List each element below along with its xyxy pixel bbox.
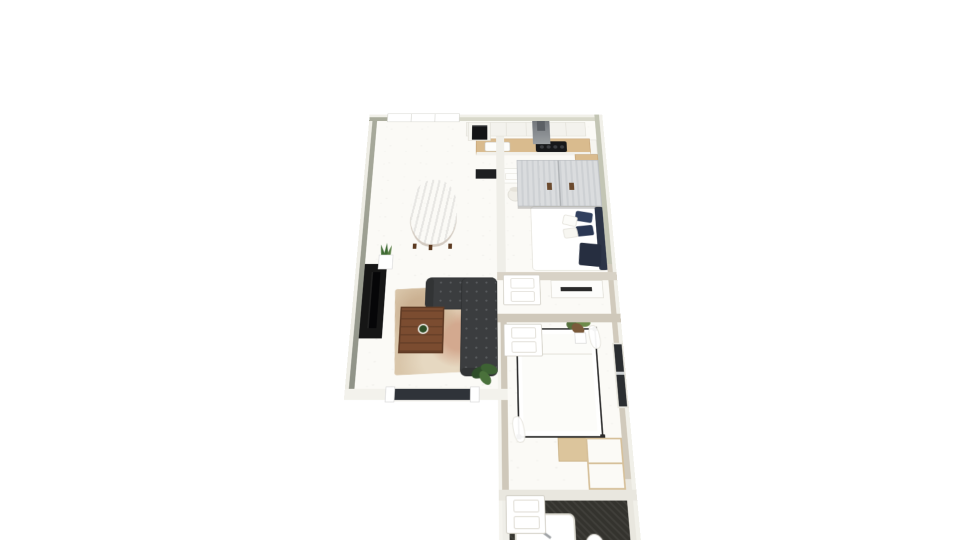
- door-panel: [514, 516, 540, 529]
- door-panel: [513, 500, 539, 513]
- sliding-glass-door[interactable]: [387, 113, 460, 122]
- door-panel: [510, 278, 535, 288]
- console-table[interactable]: [551, 280, 604, 298]
- dining-table[interactable]: [409, 180, 458, 244]
- tabletop-plant: [419, 325, 427, 332]
- partition-hall-bedroom2: [497, 314, 621, 323]
- floor-plant[interactable]: [471, 362, 500, 390]
- burner: [540, 145, 544, 148]
- double-bed[interactable]: [530, 206, 607, 270]
- floorplan-scene: [337, 121, 635, 540]
- wardrobe-handle: [569, 183, 574, 190]
- oven-tall-unit[interactable]: [468, 122, 491, 141]
- burner: [560, 145, 564, 148]
- planter-snake-plant[interactable]: [375, 246, 397, 268]
- door-panel: [511, 341, 537, 352]
- white-pillow: [563, 227, 579, 238]
- white-pillow: [562, 214, 578, 227]
- apartment-plan: [337, 121, 635, 540]
- canvas-background: [0, 0, 960, 540]
- console-slot: [561, 287, 593, 291]
- plant-pot: [574, 333, 586, 344]
- sofa-armrest: [425, 278, 434, 309]
- table-leg: [448, 244, 452, 249]
- interior-door-2[interactable]: [504, 324, 543, 357]
- chest-coffee-table[interactable]: [398, 307, 445, 354]
- plant-pot: [378, 255, 394, 270]
- table-leg: [413, 244, 417, 249]
- burner: [553, 145, 557, 148]
- door-panel: [510, 291, 535, 301]
- wardrobe-door-seam: [557, 161, 561, 206]
- hood-chimney: [537, 120, 545, 131]
- folded-throw: [579, 243, 602, 267]
- oven-door: [472, 125, 487, 139]
- table-leg: [429, 245, 433, 250]
- dresser-drawers[interactable]: [586, 438, 627, 490]
- living-room-window[interactable]: [392, 387, 473, 401]
- bathroom-door[interactable]: [506, 495, 547, 534]
- range-hood[interactable]: [532, 120, 550, 144]
- wardrobe[interactable]: [517, 160, 603, 206]
- burner: [547, 145, 551, 148]
- interior-door-1[interactable]: [503, 275, 541, 305]
- wardrobe-handle: [547, 183, 552, 190]
- door-panel: [511, 328, 536, 339]
